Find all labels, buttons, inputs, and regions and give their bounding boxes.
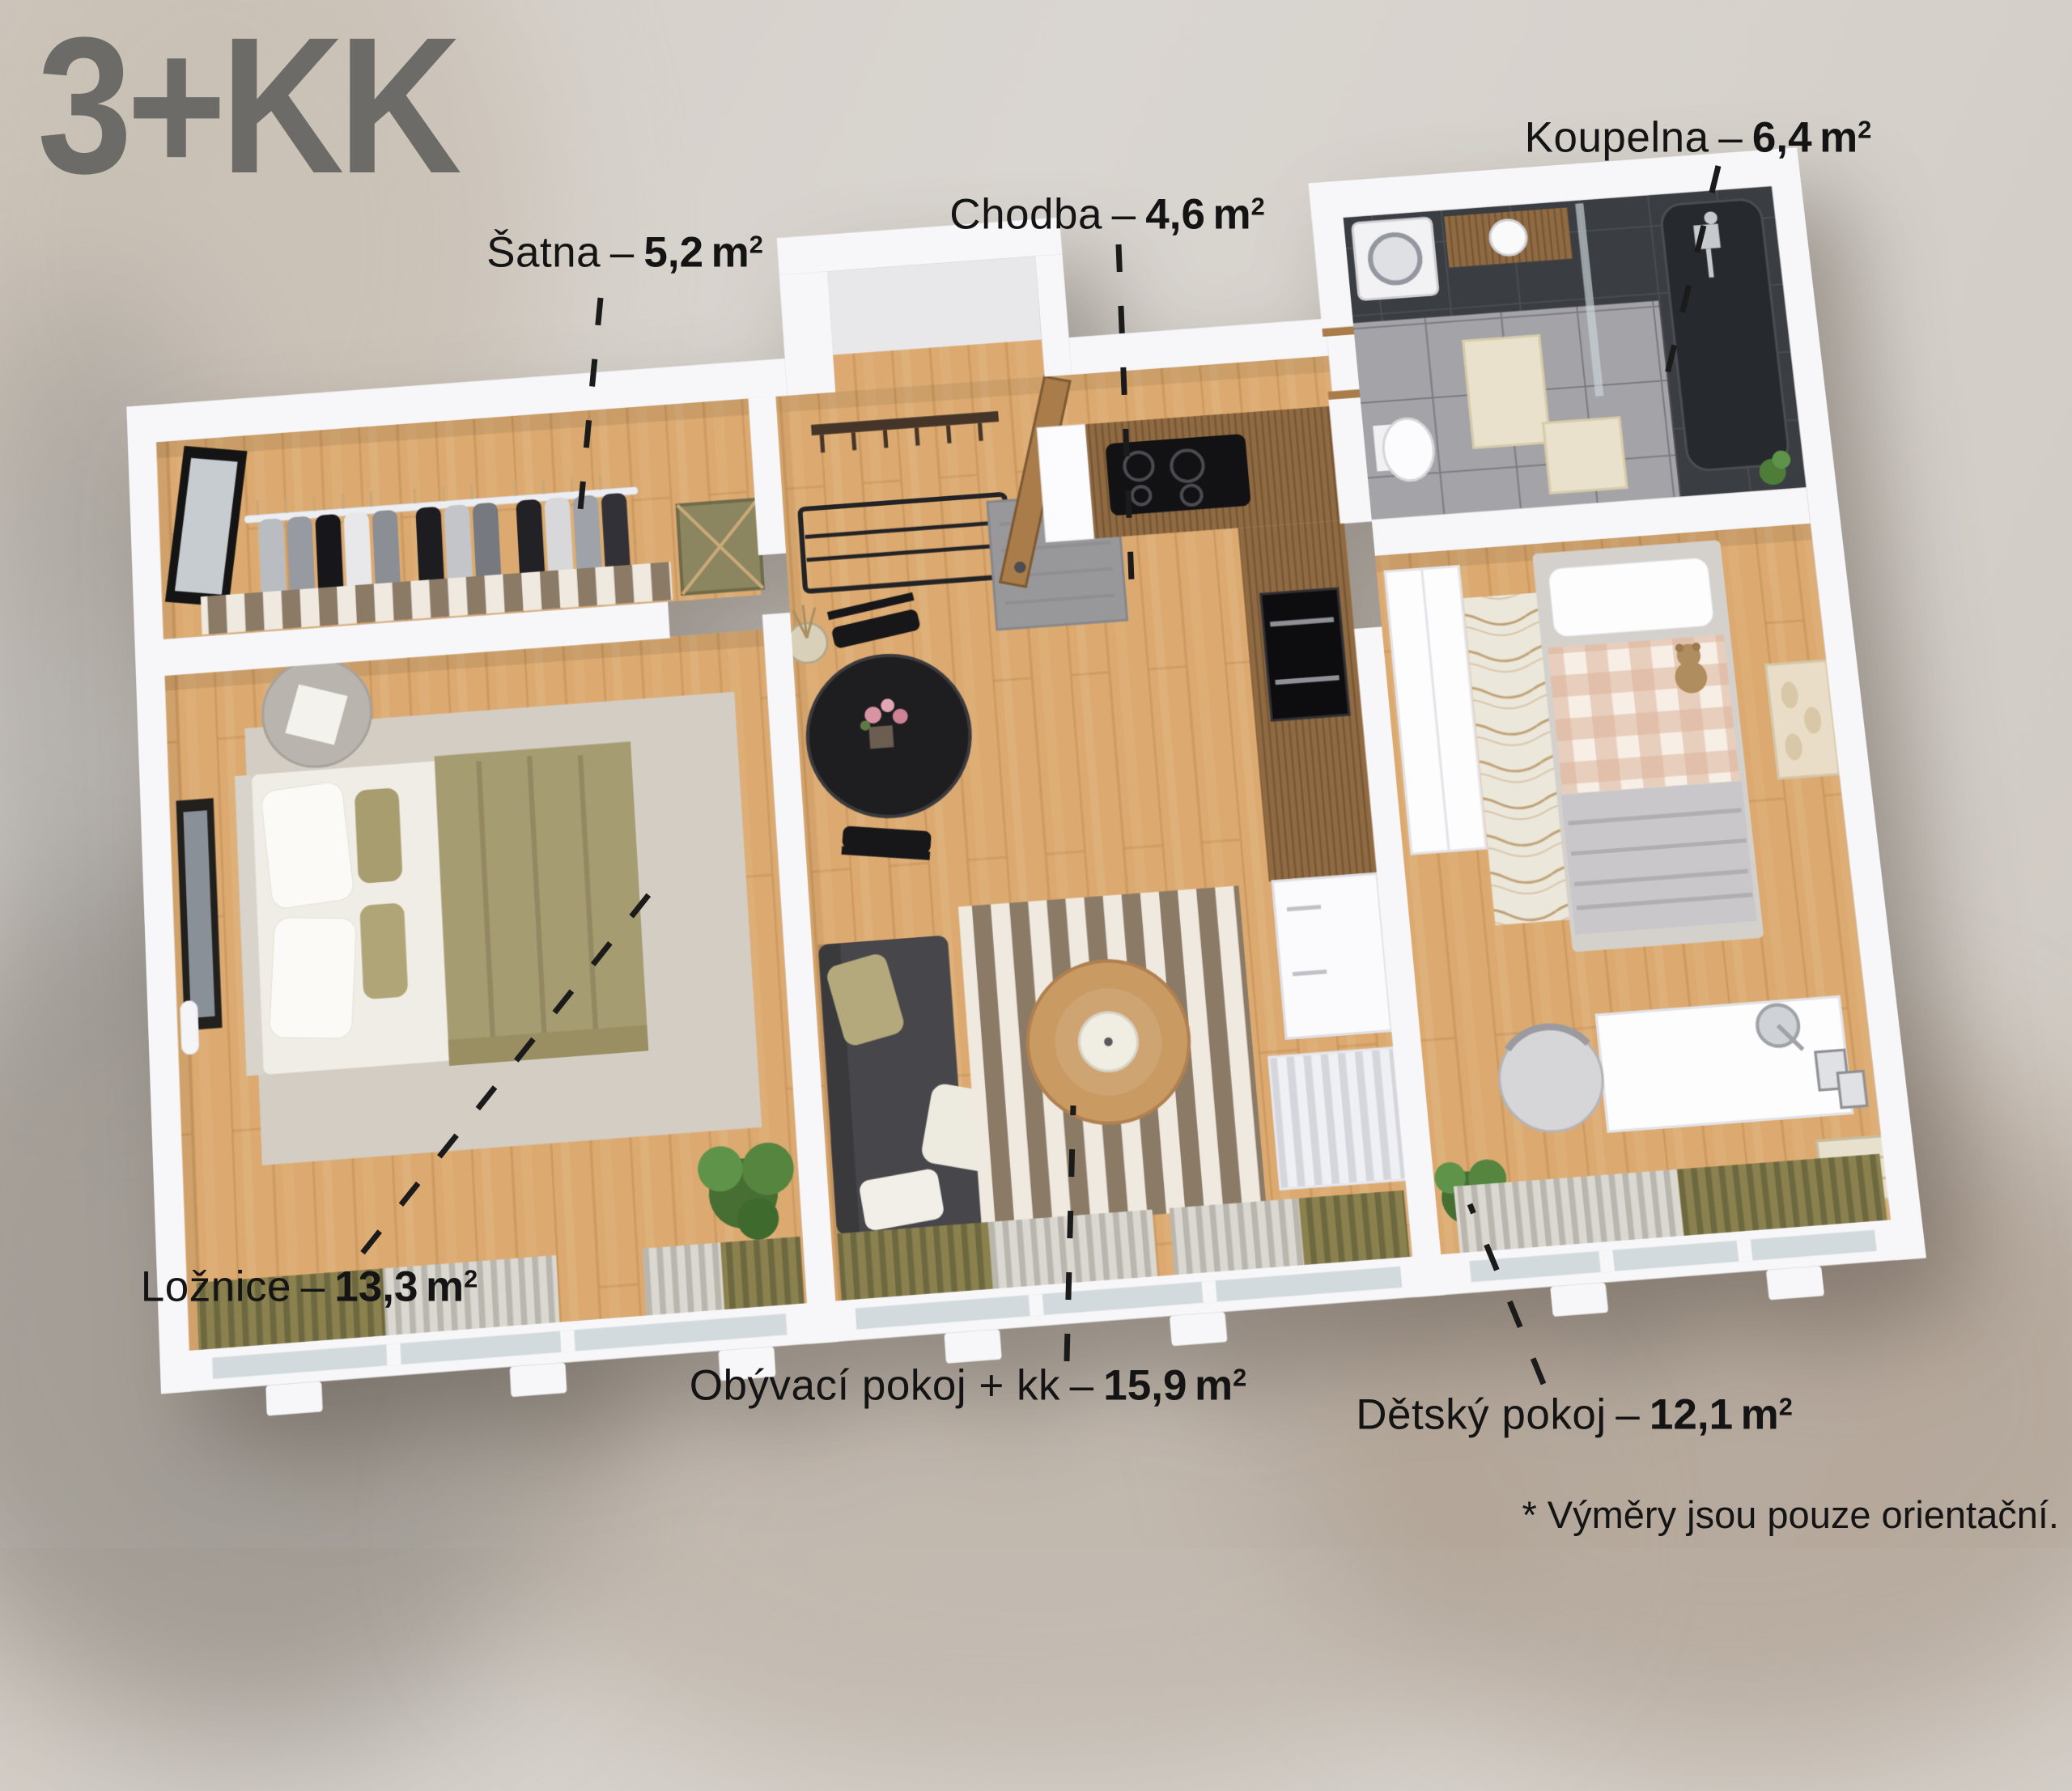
washing-machine xyxy=(1352,218,1438,300)
room-area-unit: m2 xyxy=(1819,114,1871,162)
oven xyxy=(1261,588,1350,720)
label-separator: – xyxy=(1718,114,1743,162)
dining-chair xyxy=(841,825,931,860)
room-name: Ložnice xyxy=(141,1263,291,1311)
cooktop xyxy=(1105,434,1250,516)
bath-mat xyxy=(1543,418,1627,494)
room-label-detsky-pokoj: Dětský pokoj–12,1m2 xyxy=(1356,1390,1793,1440)
room-area-value: 12,1 xyxy=(1650,1391,1733,1439)
label-separator: – xyxy=(610,229,635,277)
kitchen-base-cabinet xyxy=(1272,873,1391,1038)
room-area-unit: m2 xyxy=(1212,191,1264,239)
room-name: Chodba xyxy=(949,191,1102,239)
page-title: 3+KK xyxy=(37,8,456,202)
wall-lamp xyxy=(180,1000,199,1055)
room-label-satna: Šatna–5,2m2 xyxy=(486,228,763,278)
room-label-chodba: Chodba–4,6m2 xyxy=(949,190,1264,240)
room-area-unit: m2 xyxy=(1195,1362,1246,1410)
kitchen-cabinet xyxy=(1037,424,1094,542)
label-separator: – xyxy=(1616,1391,1640,1439)
bath-mat xyxy=(1463,335,1551,448)
room-area-unit: m2 xyxy=(711,229,763,277)
room-label-loznice: Ložnice–13,3m2 xyxy=(141,1263,478,1312)
room-name: Šatna xyxy=(486,229,601,277)
room-label-koupelna: Koupelna–6,4m2 xyxy=(1525,113,1872,163)
laundry-basket xyxy=(677,499,763,594)
room-area-unit: m2 xyxy=(1741,1391,1793,1439)
room-name: Koupelna xyxy=(1525,114,1709,162)
room-area-value: 4,6 xyxy=(1145,191,1205,239)
room-area-unit: m2 xyxy=(426,1263,478,1311)
room-area-value: 6,4 xyxy=(1752,114,1812,162)
room-name: Obývací pokoj + kk xyxy=(690,1362,1060,1410)
radiator xyxy=(1269,1048,1406,1190)
desk xyxy=(1596,995,1868,1131)
floorplan-3d xyxy=(121,147,1930,1428)
label-separator: – xyxy=(301,1263,325,1311)
room-area-value: 5,2 xyxy=(643,229,703,277)
entrance-niche xyxy=(827,256,1042,354)
room-area-value: 15,9 xyxy=(1103,1362,1187,1410)
footnote: * Výměry jsou pouze orientační. xyxy=(1522,1492,2059,1537)
room-name: Dětský pokoj xyxy=(1356,1391,1606,1439)
floorplan-page: { "title": {"text": "3+KK"}, "rooms": [ … xyxy=(0,0,2072,1548)
room-label-obyvaci-pokoj: Obývací pokoj + kk–15,9m2 xyxy=(690,1361,1246,1411)
label-separator: – xyxy=(1070,1362,1094,1410)
label-separator: – xyxy=(1112,191,1136,239)
room-area-value: 13,3 xyxy=(334,1263,418,1311)
photo-frame xyxy=(1837,1071,1867,1107)
double-bed xyxy=(235,741,649,1081)
